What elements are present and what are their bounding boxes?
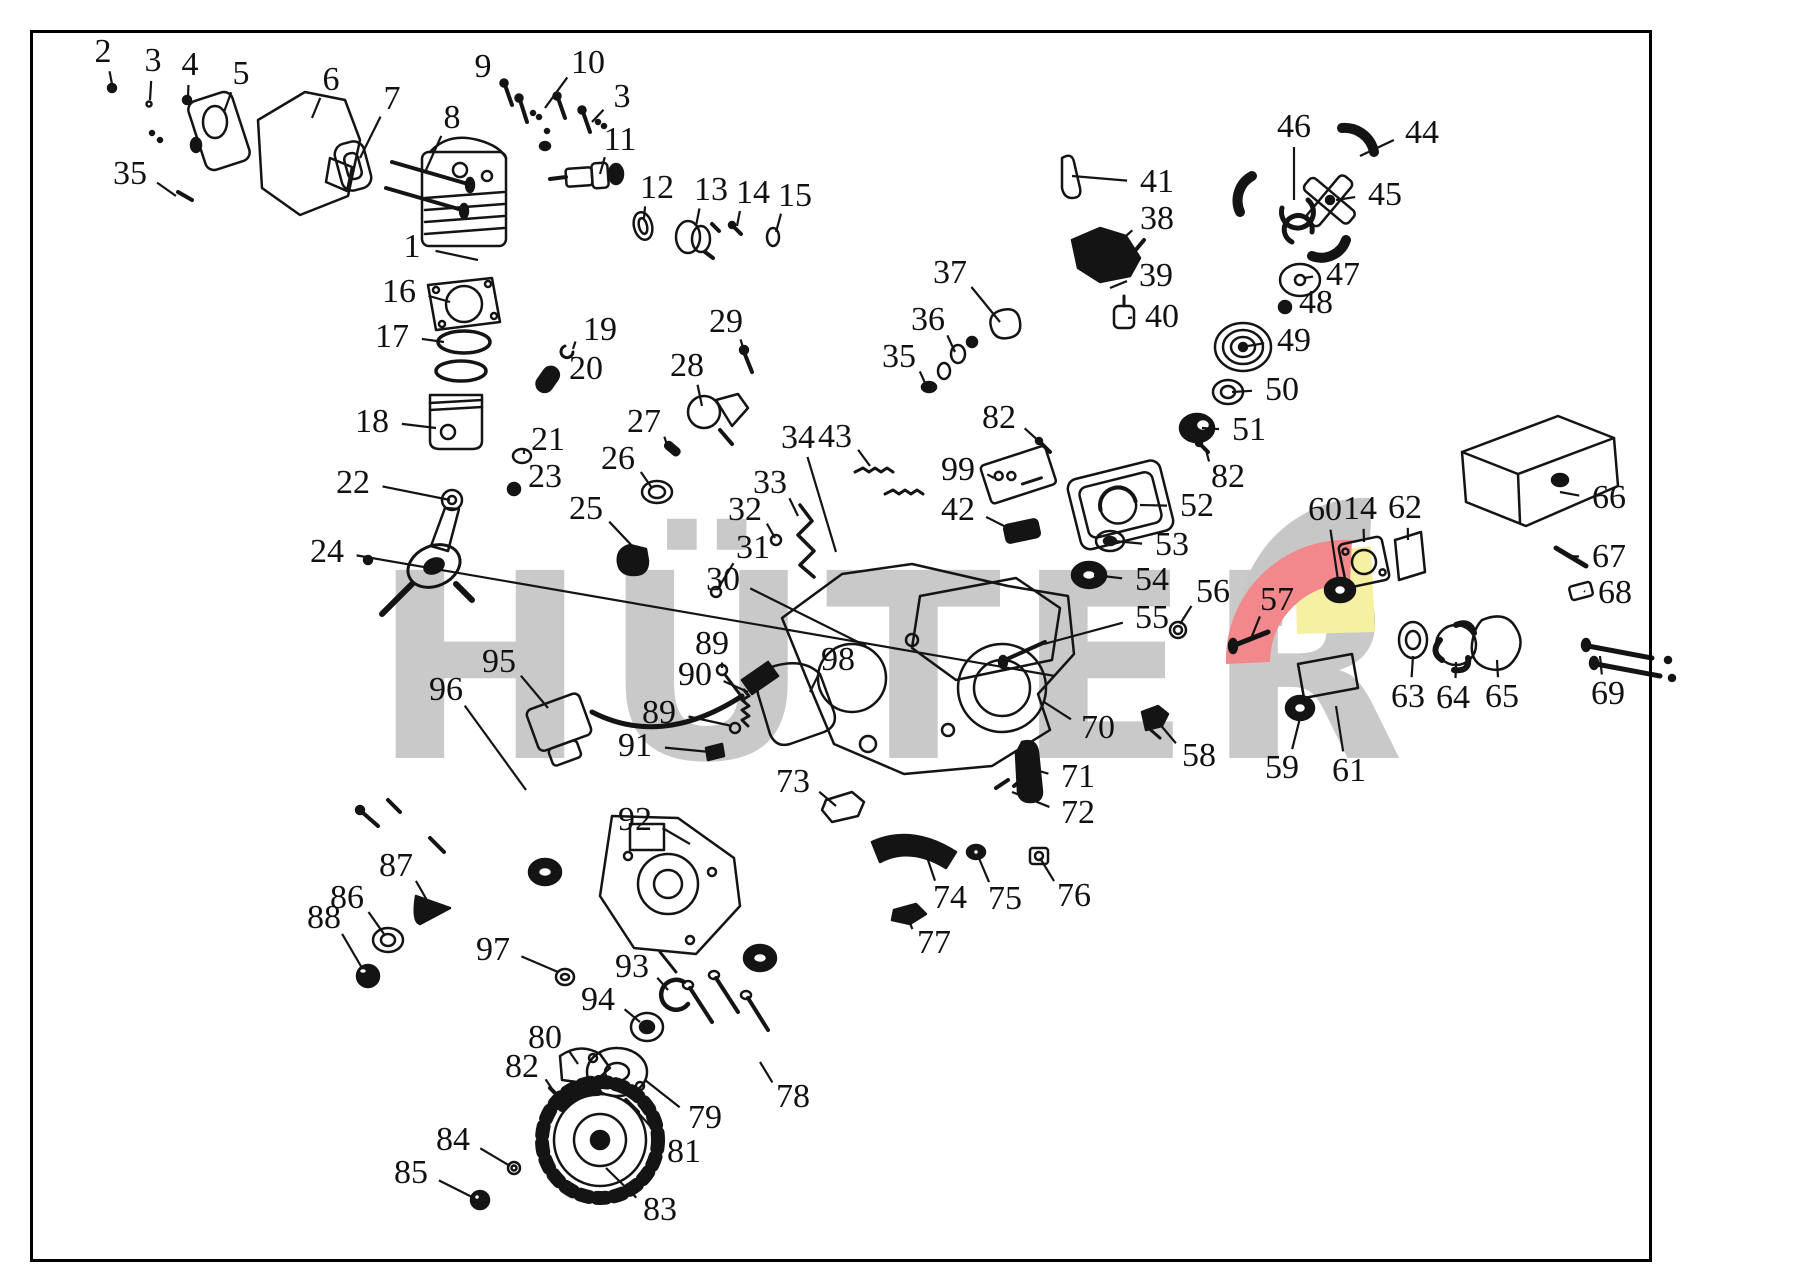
callout-23: 23 xyxy=(528,460,562,494)
callout-27: 27 xyxy=(627,405,661,439)
callout-41: 41 xyxy=(1140,165,1174,199)
callout-63: 63 xyxy=(1391,680,1425,714)
callout-25: 25 xyxy=(569,492,603,526)
callout-14: 14 xyxy=(1343,492,1377,526)
callout-67: 67 xyxy=(1592,540,1626,574)
callout-78: 78 xyxy=(776,1080,810,1114)
callout-36: 36 xyxy=(911,303,945,337)
callout-55: 55 xyxy=(1135,601,1169,635)
callout-94: 94 xyxy=(581,983,615,1017)
callout-53: 53 xyxy=(1155,528,1189,562)
callout-28: 28 xyxy=(670,349,704,383)
callout-6: 6 xyxy=(323,63,340,97)
callout-34: 34 xyxy=(781,421,815,455)
callout-50: 50 xyxy=(1265,373,1299,407)
callout-62: 62 xyxy=(1388,491,1422,525)
callout-91: 91 xyxy=(618,729,652,763)
callout-61: 61 xyxy=(1332,754,1366,788)
callout-5: 5 xyxy=(233,57,250,91)
callout-87: 87 xyxy=(379,849,413,883)
callout-56: 56 xyxy=(1196,575,1230,609)
callout-69: 69 xyxy=(1591,677,1625,711)
callout-12: 12 xyxy=(640,171,674,205)
diagram-page: HÜTER xyxy=(0,0,1809,1283)
callout-73: 73 xyxy=(776,765,810,799)
callout-60: 60 xyxy=(1308,493,1342,527)
callout-24: 24 xyxy=(310,535,344,569)
callout-45: 45 xyxy=(1368,178,1402,212)
callout-88: 88 xyxy=(307,901,341,935)
callout-57: 57 xyxy=(1260,583,1294,617)
callout-84: 84 xyxy=(436,1123,470,1157)
callout-40: 40 xyxy=(1145,300,1179,334)
callout-29: 29 xyxy=(709,305,743,339)
callout-43: 43 xyxy=(818,420,852,454)
callout-82: 82 xyxy=(1211,460,1245,494)
callout-59: 59 xyxy=(1265,751,1299,785)
callout-99: 99 xyxy=(941,453,975,487)
callout-82: 82 xyxy=(505,1050,539,1084)
callout-68: 68 xyxy=(1598,576,1632,610)
callout-46: 46 xyxy=(1277,110,1311,144)
callout-89: 89 xyxy=(642,696,676,730)
callout-72: 72 xyxy=(1061,796,1095,830)
callout-92: 92 xyxy=(618,803,652,837)
callout-14: 14 xyxy=(736,176,770,210)
callout-19: 19 xyxy=(583,313,617,347)
callout-75: 75 xyxy=(988,882,1022,916)
callout-51: 51 xyxy=(1232,413,1266,447)
callout-10: 10 xyxy=(571,46,605,80)
callout-21: 21 xyxy=(531,423,565,457)
callout-66: 66 xyxy=(1592,481,1626,515)
callout-2: 2 xyxy=(95,35,112,69)
callout-76: 76 xyxy=(1057,879,1091,913)
callout-52: 52 xyxy=(1180,489,1214,523)
callout-97: 97 xyxy=(476,933,510,967)
callout-70: 70 xyxy=(1081,711,1115,745)
callout-35: 35 xyxy=(113,157,147,191)
callout-22: 22 xyxy=(336,466,370,500)
callout-15: 15 xyxy=(778,179,812,213)
callout-8: 8 xyxy=(444,101,461,135)
callout-9: 9 xyxy=(475,50,492,84)
callout-42: 42 xyxy=(941,493,975,527)
callout-18: 18 xyxy=(355,405,389,439)
callout-96: 96 xyxy=(429,673,463,707)
callout-16: 16 xyxy=(382,275,416,309)
callout-1: 1 xyxy=(404,230,421,264)
callout-64: 64 xyxy=(1436,681,1470,715)
callout-7: 7 xyxy=(384,82,401,116)
callout-77: 77 xyxy=(917,926,951,960)
callout-48: 48 xyxy=(1299,286,1333,320)
callout-82: 82 xyxy=(982,401,1016,435)
callout-26: 26 xyxy=(601,442,635,476)
callout-4: 4 xyxy=(182,48,199,82)
callout-13: 13 xyxy=(694,173,728,207)
callout-37: 37 xyxy=(933,256,967,290)
callout-38: 38 xyxy=(1140,202,1174,236)
callout-79: 79 xyxy=(688,1101,722,1135)
callout-35: 35 xyxy=(882,340,916,374)
callout-90: 90 xyxy=(678,658,712,692)
callout-93: 93 xyxy=(615,950,649,984)
callout-20: 20 xyxy=(569,352,603,386)
callout-83: 83 xyxy=(643,1193,677,1227)
callout-74: 74 xyxy=(933,881,967,915)
callout-39: 39 xyxy=(1139,259,1173,293)
callout-44: 44 xyxy=(1405,116,1439,150)
callout-11: 11 xyxy=(604,123,637,157)
callout-58: 58 xyxy=(1182,739,1216,773)
callout-65: 65 xyxy=(1485,680,1519,714)
callout-85: 85 xyxy=(394,1156,428,1190)
callout-98: 98 xyxy=(821,643,855,677)
callout-30: 30 xyxy=(706,563,740,597)
callout-17: 17 xyxy=(375,320,409,354)
callout-33: 33 xyxy=(753,466,787,500)
callout-3: 3 xyxy=(145,44,162,78)
callout-95: 95 xyxy=(482,645,516,679)
callout-49: 49 xyxy=(1277,324,1311,358)
callout-81: 81 xyxy=(667,1135,701,1169)
callout-71: 71 xyxy=(1061,760,1095,794)
callout-54: 54 xyxy=(1135,563,1169,597)
callout-3: 3 xyxy=(614,80,631,114)
callout-31: 31 xyxy=(736,531,770,565)
